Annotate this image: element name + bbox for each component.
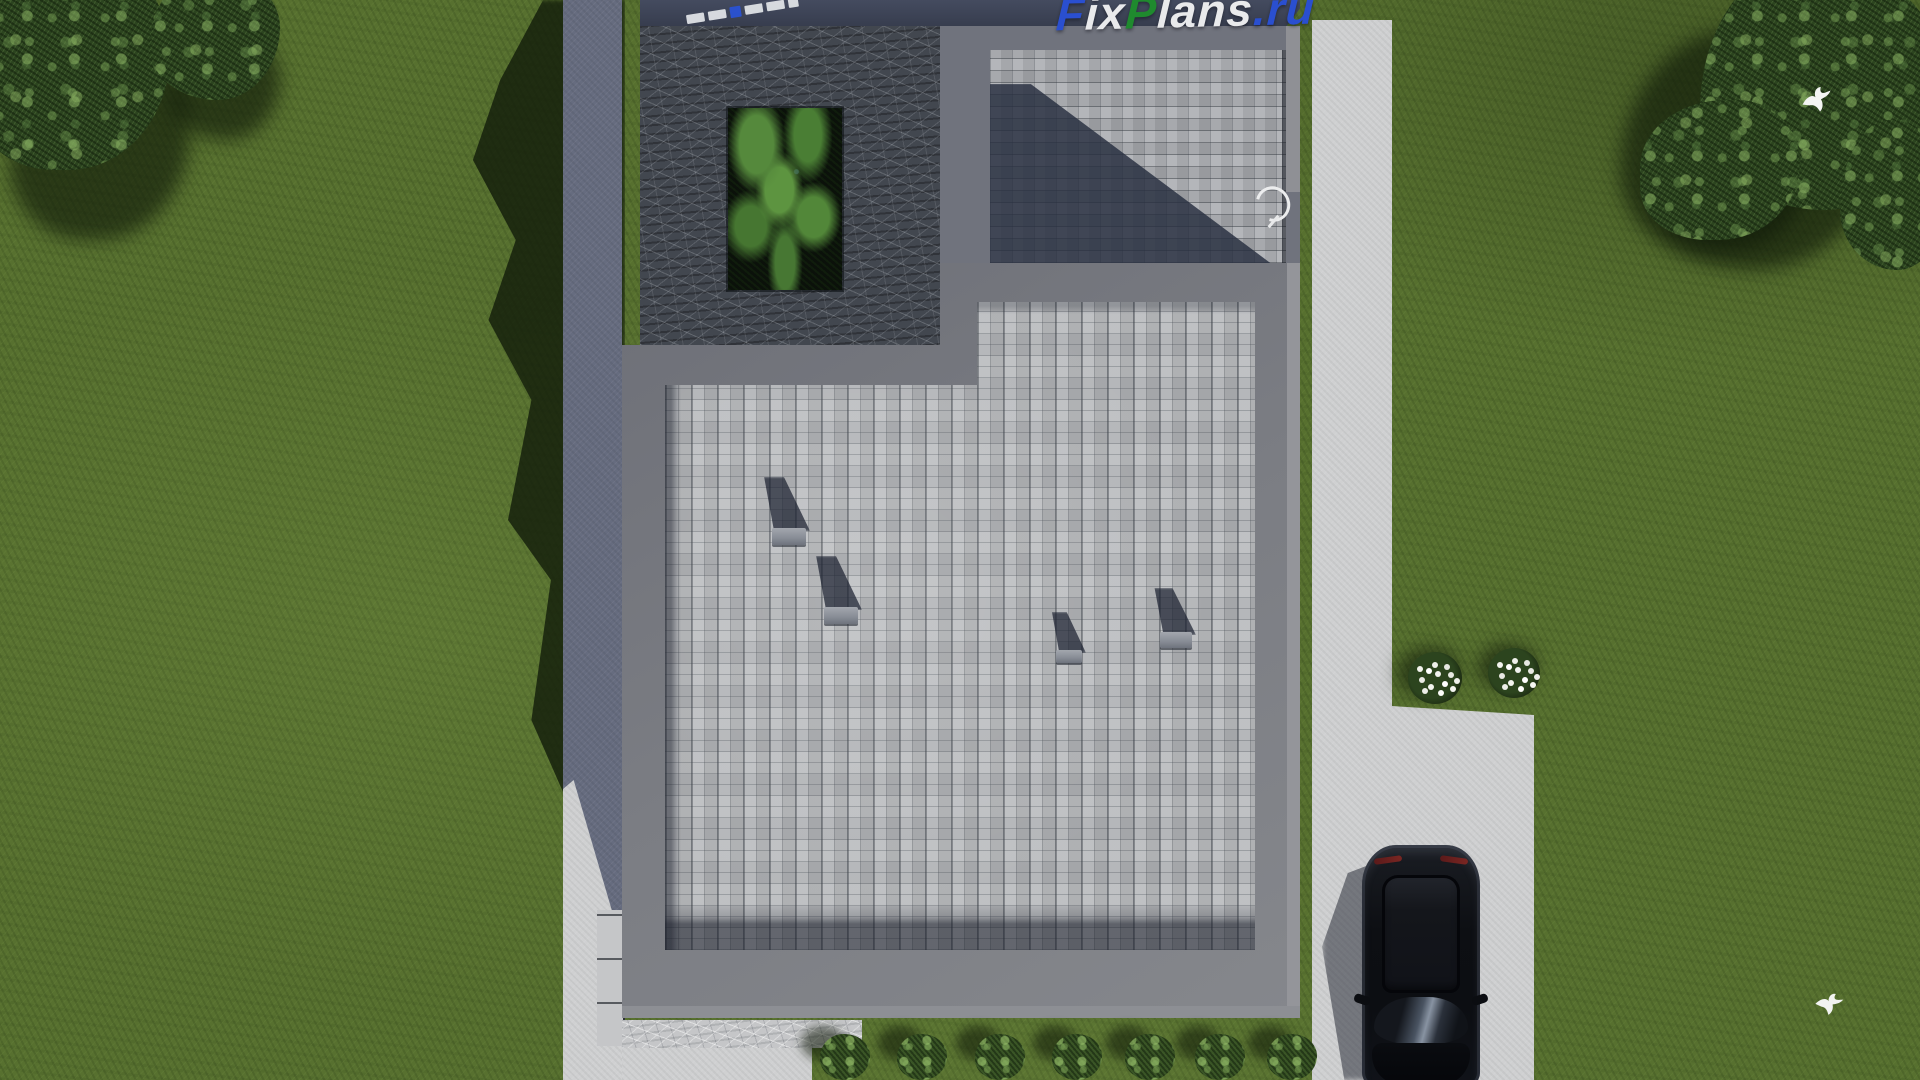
hedge-bush (975, 1034, 1025, 1080)
watermark-segment: P (1124, 0, 1158, 39)
parapet-highlight (1287, 258, 1300, 1018)
concrete-walk-bottom (622, 1048, 812, 1080)
roof-vent (824, 607, 858, 624)
watermark-tile-blue (729, 6, 742, 19)
roof-vent (1160, 632, 1192, 648)
flower-bush (1488, 648, 1540, 698)
watermark-tile (686, 13, 705, 25)
watermark-tile (744, 3, 763, 15)
bird-icon (1812, 989, 1846, 1018)
watermark-tile (708, 9, 727, 21)
watermark-segment: .ru (1252, 0, 1316, 35)
shaded-roof-court (940, 26, 1300, 263)
parapet-highlight (622, 1006, 1300, 1018)
car-windshield (1374, 997, 1468, 1045)
garden-path (1312, 20, 1392, 712)
watermark-segment: ix (1084, 0, 1127, 40)
aerial-site-view: FixPlans.ru (0, 0, 1920, 1080)
car-roof-glass (1382, 875, 1460, 993)
steps (597, 910, 625, 1046)
site-watermark: FixPlans.ru (1055, 0, 1316, 41)
hedge-bush (1267, 1034, 1317, 1080)
black-suv-car (1362, 845, 1480, 1080)
hedge-bush (1052, 1034, 1102, 1080)
main-flat-roof (622, 258, 1300, 1018)
court-parapet-lit (1286, 26, 1300, 192)
court-shadow (990, 50, 1282, 263)
hedge-bush (820, 1034, 870, 1080)
watermark-tile (788, 0, 799, 8)
hedge-bush (897, 1034, 947, 1080)
flower-bush (1408, 652, 1462, 704)
watermark-tile (766, 0, 785, 12)
hedge-bush (1125, 1034, 1175, 1080)
court-pavers (990, 50, 1286, 263)
car-hood (1372, 1043, 1470, 1080)
watermark-segment: F (1055, 0, 1086, 40)
roof-vent (1056, 650, 1082, 663)
watermark-segment: lans (1156, 0, 1254, 38)
roof-vent (772, 528, 806, 545)
green-roof-garden (728, 108, 842, 290)
bird-icon (1798, 83, 1836, 116)
white-flowers (1426, 668, 1432, 674)
hedge-bush (1195, 1034, 1245, 1080)
white-flowers (1506, 664, 1512, 670)
